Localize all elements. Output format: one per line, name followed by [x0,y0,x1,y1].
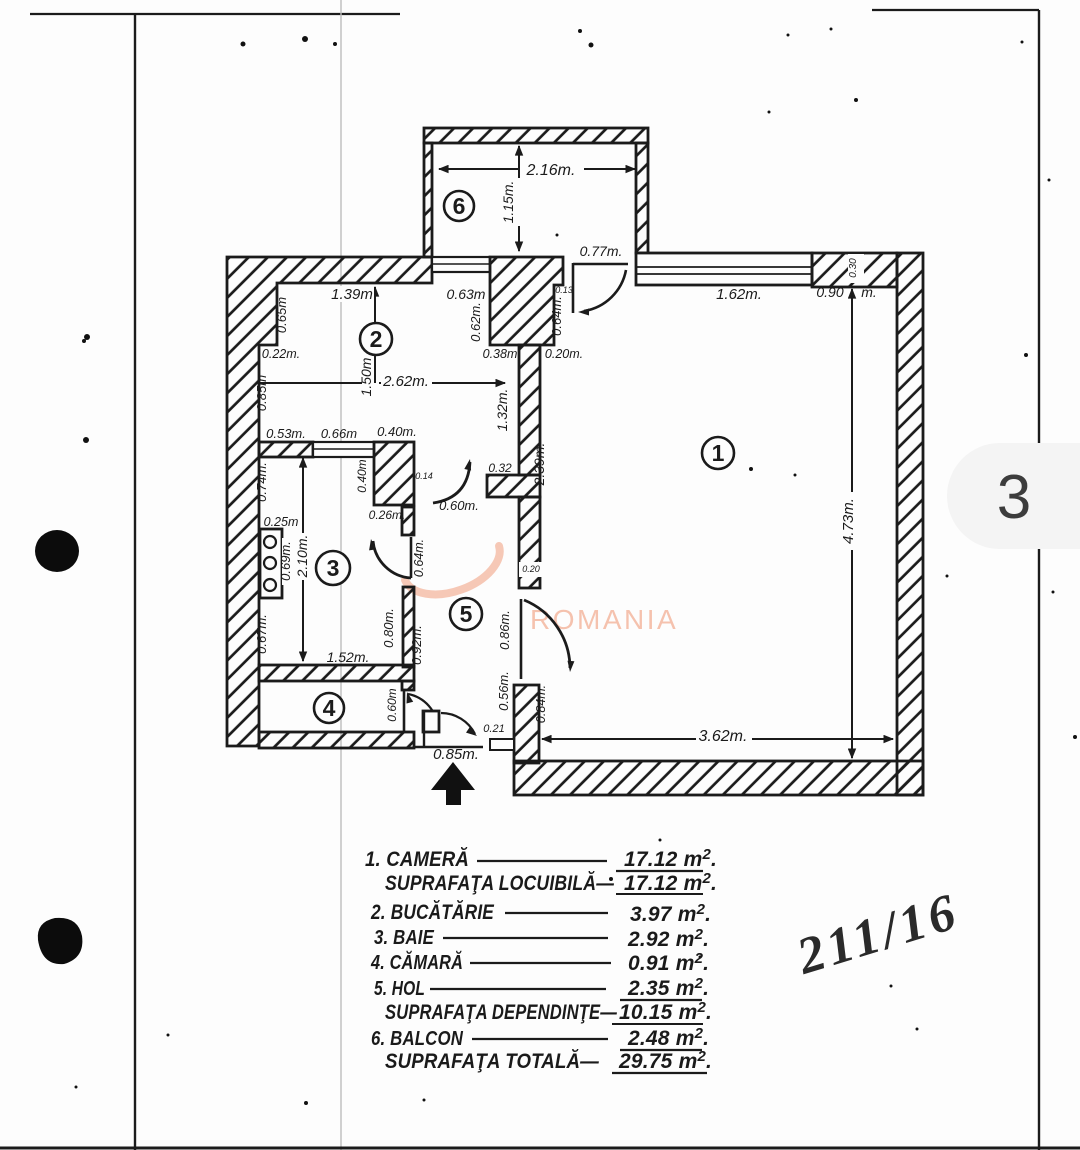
svg-text:0.80m.: 0.80m. [381,608,396,648]
svg-text:3.62m.: 3.62m. [699,728,748,745]
svg-text:0.56m.: 0.56m. [496,671,511,711]
svg-text:0.32: 0.32 [488,461,512,475]
svg-text:0.22m.: 0.22m. [262,347,300,361]
svg-text:0.38m: 0.38m [483,347,518,361]
svg-text:1.32m.: 1.32m. [494,389,510,432]
svg-text:1.15m.: 1.15m. [500,181,516,224]
svg-text:0.40m.: 0.40m. [377,424,417,439]
svg-text:0.64m.: 0.64m. [549,296,564,336]
svg-text:0.85m.: 0.85m. [433,746,479,763]
svg-text:5. HOL: 5. HOL [374,978,425,1000]
svg-text:0.40m: 0.40m [355,459,369,492]
svg-text:0.60m.: 0.60m. [439,498,479,513]
svg-text:0.13: 0.13 [555,285,573,295]
svg-text:6: 6 [453,193,466,219]
svg-text:3. BAIE: 3. BAIE [374,927,434,949]
svg-text:SUPRAFAŢA TOTALĂ—: SUPRAFAŢA TOTALĂ— [385,1050,600,1073]
svg-text:0.92m.: 0.92m. [409,625,424,665]
svg-text:2.39m.: 2.39m. [531,443,547,487]
svg-text:1. CAMERĂ: 1. CAMERĂ [365,848,469,871]
svg-text:2. BUCĂTĂRIE: 2. BUCĂTĂRIE [370,901,494,924]
svg-text:0.62m.: 0.62m. [468,302,483,342]
svg-text:1.39m: 1.39m [331,286,373,303]
svg-text:0.69m.: 0.69m. [278,541,293,581]
svg-text:0.21: 0.21 [483,723,504,735]
svg-text:0.67m.: 0.67m. [254,614,269,654]
svg-text:m.: m. [861,284,877,300]
svg-text:0.90: 0.90 [816,284,843,300]
svg-text:0.86m.: 0.86m. [497,610,512,650]
svg-text:0.66m: 0.66m [321,426,357,441]
svg-text:0.77m.: 0.77m. [580,243,623,259]
svg-text:0.30: 0.30 [848,258,859,278]
svg-text:0.65m: 0.65m [274,297,289,333]
svg-text:6. BALCON: 6. BALCON [371,1028,463,1050]
svg-text:2.62m.: 2.62m. [382,373,429,390]
svg-text:0.26m.: 0.26m. [369,508,406,522]
svg-text:SUPRAFAŢA DEPENDINŢE—: SUPRAFAŢA DEPENDINŢE— [385,1001,618,1024]
svg-text:0.74m.: 0.74m. [254,462,269,502]
svg-text:2: 2 [370,326,383,352]
svg-text:0.60m: 0.60m [385,688,399,721]
svg-text:1.52m.: 1.52m. [327,649,370,665]
svg-text:0.85m: 0.85m [254,375,269,411]
svg-text:3: 3 [997,463,1031,532]
svg-text:1.50m: 1.50m [358,357,374,396]
svg-text:0.20: 0.20 [522,564,540,574]
svg-text:4: 4 [323,695,336,721]
svg-text:0.25m: 0.25m [264,515,299,529]
svg-text:4. CĂMARĂ: 4. CĂMARĂ [370,951,463,974]
svg-text:4.73m.: 4.73m. [840,498,857,544]
svg-text:3: 3 [327,555,340,581]
svg-text:1: 1 [712,440,725,466]
svg-text:0.53m.: 0.53m. [266,426,306,441]
svg-text:1.62m.: 1.62m. [716,286,762,303]
svg-text:0.84m.: 0.84m. [534,685,548,723]
svg-text:2.16m.: 2.16m. [526,162,576,179]
svg-text:0.14: 0.14 [415,471,433,481]
svg-text:0.63m: 0.63m [447,286,486,302]
svg-text:5: 5 [460,601,473,627]
svg-text:0.64m.: 0.64m. [412,539,426,577]
svg-text:SUPRAFAŢA LOCUIBILĂ—: SUPRAFAŢA LOCUIBILĂ— [385,872,615,895]
svg-text:2.10m.: 2.10m. [294,535,310,579]
svg-text:0.20m.: 0.20m. [545,347,583,361]
